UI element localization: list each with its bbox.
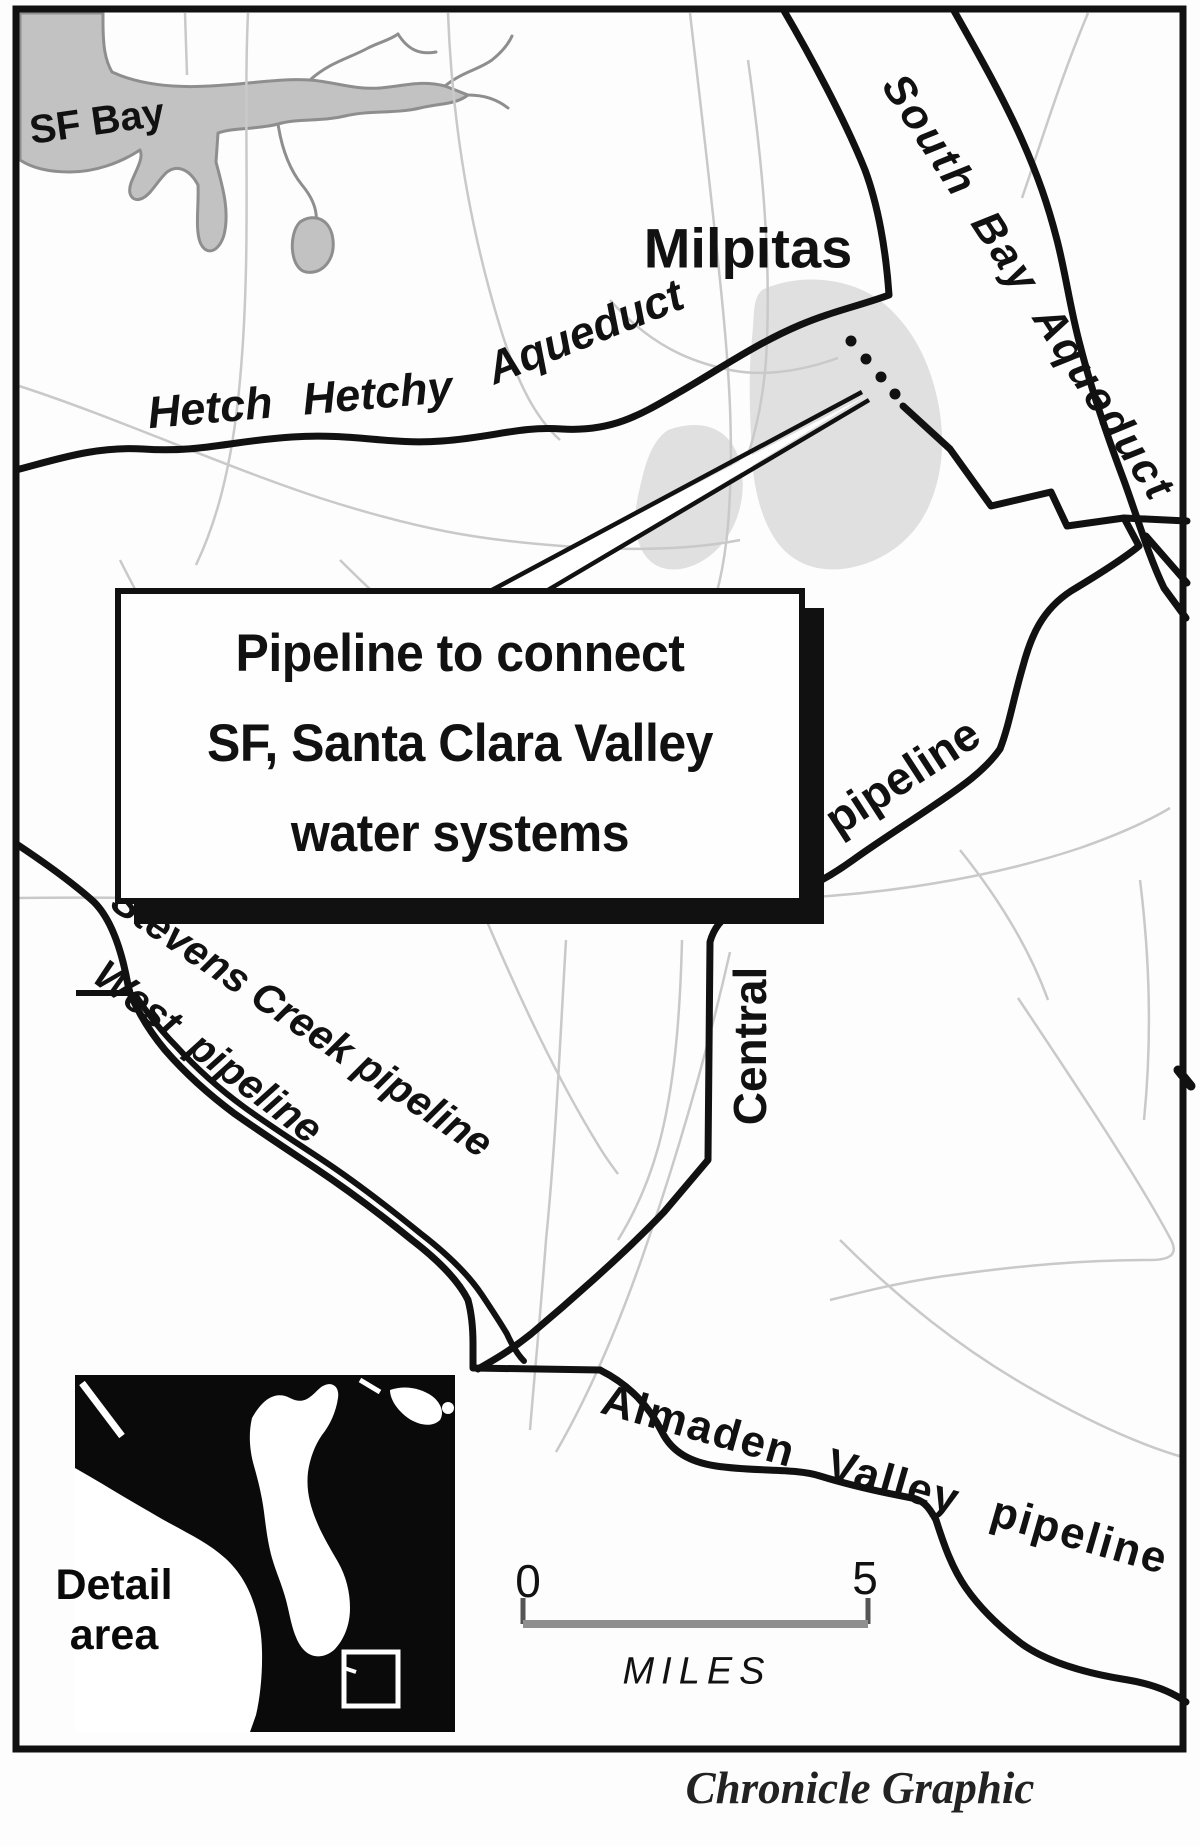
bay-sloughs (278, 34, 512, 224)
central-pipeline-name-label: Central (723, 967, 777, 1125)
detail-area-label: Detail area (38, 1560, 190, 1660)
callout-line1: Pipeline to connect (121, 606, 799, 701)
detail-area-line1: Detail (38, 1560, 190, 1610)
scale-bar (523, 1598, 868, 1624)
milpitas-label: Milpitas (644, 216, 852, 281)
scale-end-label: 5 (852, 1551, 878, 1605)
bay-slough-pond (292, 218, 333, 273)
detail-inset-map (75, 1375, 455, 1732)
callout-line3: water systems (121, 786, 799, 881)
detail-area-line2: area (38, 1610, 190, 1660)
callout-line2: SF, Santa Clara Valley (121, 696, 799, 791)
credit-label: Chronicle Graphic (686, 1762, 1035, 1814)
scale-unit-label: MILES (622, 1651, 771, 1694)
milpitas-city-area (750, 280, 942, 570)
scale-start-label: 0 (515, 1554, 541, 1608)
map-graphic: SF Bay Milpitas Hetch Hetchy Aqueduct So… (0, 0, 1200, 1846)
callout-box: Pipeline to connect SF, Santa Clara Vall… (115, 588, 805, 904)
